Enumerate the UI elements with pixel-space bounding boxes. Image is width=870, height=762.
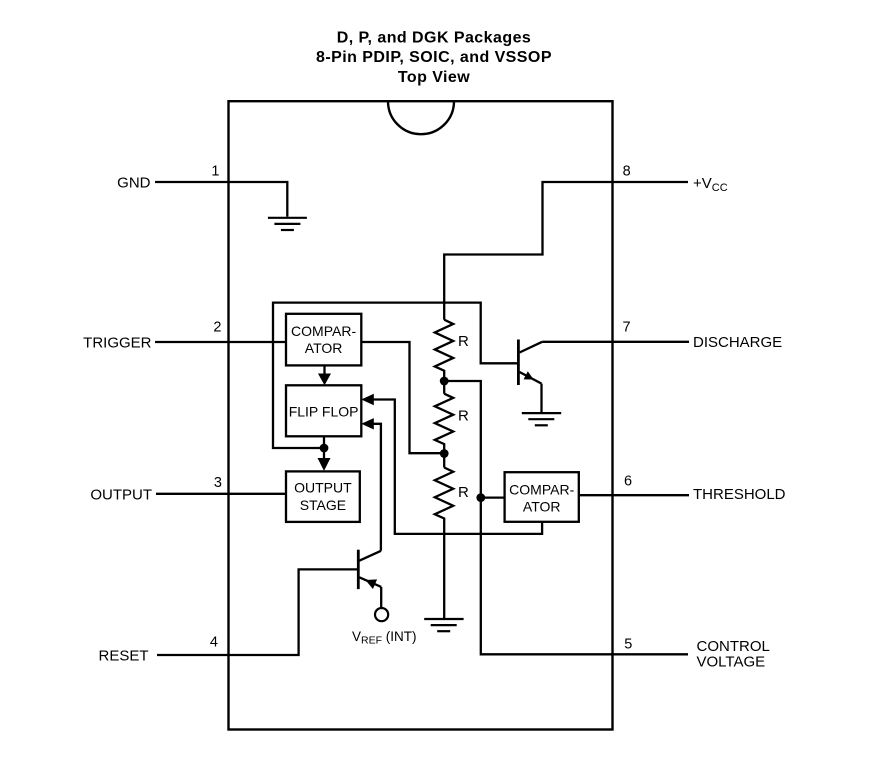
svg-text:Top View: Top View: [398, 69, 470, 86]
svg-text:3: 3: [214, 475, 222, 491]
svg-text:CONTROL: CONTROL: [697, 638, 770, 655]
svg-text:D, P, and DGK Packages: D, P, and DGK Packages: [337, 30, 532, 47]
svg-text:R: R: [458, 333, 469, 350]
svg-text:OUTPUT: OUTPUT: [294, 480, 352, 496]
svg-text:ATOR: ATOR: [523, 499, 561, 515]
svg-text:STAGE: STAGE: [300, 497, 346, 513]
svg-text:RESET: RESET: [98, 648, 148, 665]
svg-text:OUTPUT: OUTPUT: [90, 487, 152, 504]
svg-text:VOLTAGE: VOLTAGE: [697, 654, 766, 671]
svg-text:DISCHARGE: DISCHARGE: [693, 334, 782, 351]
svg-text:GND: GND: [117, 175, 151, 192]
svg-text:R: R: [458, 407, 469, 424]
svg-text:6: 6: [624, 474, 632, 490]
svg-text:COMPAR-: COMPAR-: [291, 323, 356, 339]
svg-text:8-Pin PDIP, SOIC, and VSSOP: 8-Pin PDIP, SOIC, and VSSOP: [316, 49, 552, 66]
svg-text:ATOR: ATOR: [305, 340, 343, 356]
svg-text:8: 8: [623, 164, 631, 180]
svg-text:1: 1: [211, 164, 219, 180]
svg-text:THRESHOLD: THRESHOLD: [693, 486, 786, 503]
svg-text:2: 2: [213, 320, 221, 336]
svg-text:4: 4: [210, 635, 218, 651]
svg-text:FLIP FLOP: FLIP FLOP: [289, 403, 359, 419]
svg-text:7: 7: [623, 320, 631, 336]
svg-text:R: R: [458, 484, 469, 501]
svg-text:TRIGGER: TRIGGER: [83, 335, 152, 352]
svg-text:COMPAR-: COMPAR-: [509, 481, 574, 497]
svg-text:5: 5: [624, 637, 632, 653]
